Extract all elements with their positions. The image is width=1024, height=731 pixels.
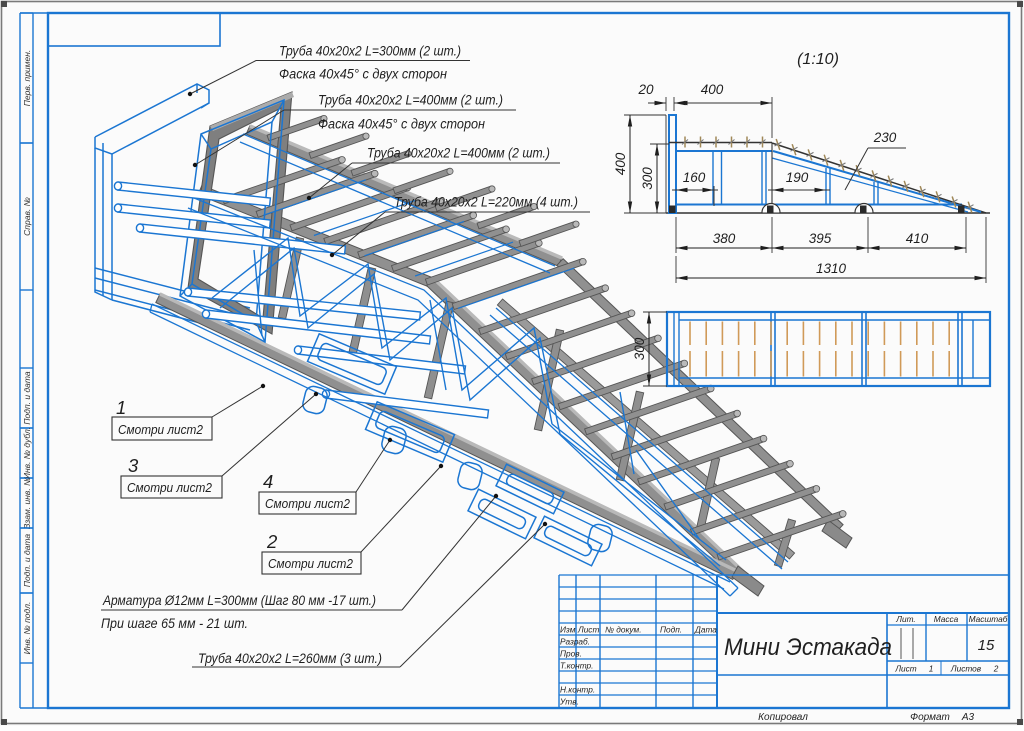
svg-text:Смотри лист2: Смотри лист2 bbox=[127, 481, 212, 495]
svg-text:Труба 40x20x2 L=260мм (3 шт.): Труба 40x20x2 L=260мм (3 шт.) bbox=[198, 651, 382, 666]
svg-text:2: 2 bbox=[993, 664, 999, 674]
svg-text:410: 410 bbox=[906, 231, 929, 246]
svg-text:Лист: Лист bbox=[577, 625, 599, 635]
svg-text:Лист: Лист bbox=[894, 664, 916, 674]
svg-text:Подп. и дата: Подп. и дата bbox=[22, 534, 32, 587]
svg-text:Смотри лист2: Смотри лист2 bbox=[268, 557, 353, 571]
svg-text:При шаге 65 мм - 21 шт.: При шаге 65 мм - 21 шт. bbox=[101, 616, 248, 631]
svg-text:1: 1 bbox=[116, 397, 126, 418]
svg-text:Справ. №: Справ. № bbox=[22, 197, 32, 236]
svg-text:Разраб.: Разраб. bbox=[560, 637, 590, 647]
svg-text:Подп.: Подп. bbox=[660, 625, 682, 635]
svg-text:Взам. инв. №: Взам. инв. № bbox=[22, 477, 32, 530]
svg-text:380: 380 bbox=[713, 231, 736, 246]
svg-text:Фаска 40x45° с двух сторон: Фаска 40x45° с двух сторон bbox=[279, 67, 448, 82]
svg-text:Труба 40x20x2 L=400мм (2 шт.): Труба 40x20x2 L=400мм (2 шт.) bbox=[318, 93, 503, 108]
svg-text:2: 2 bbox=[266, 531, 278, 552]
svg-text:Т.контр.: Т.контр. bbox=[560, 661, 593, 671]
svg-text:Труба 40x20x2 L=300мм (2 шт.): Труба 40x20x2 L=300мм (2 шт.) bbox=[279, 44, 461, 59]
svg-text:Масса: Масса bbox=[934, 614, 959, 624]
svg-text:Дата: Дата bbox=[694, 625, 717, 635]
svg-text:3: 3 bbox=[128, 455, 139, 476]
svg-text:190: 190 bbox=[786, 170, 809, 185]
svg-text:Изм: Изм bbox=[560, 625, 576, 635]
svg-text:Листов: Листов bbox=[950, 664, 982, 674]
svg-text:400: 400 bbox=[613, 152, 628, 175]
svg-text:Труба 40x20x2 L=400мм (2 шт.): Труба 40x20x2 L=400мм (2 шт.) bbox=[367, 146, 550, 161]
svg-text:Инв. № дубл.: Инв. № дубл. bbox=[22, 427, 32, 479]
svg-text:Мини Эстакада: Мини Эстакада bbox=[724, 634, 892, 661]
svg-text:Утв.: Утв. bbox=[559, 697, 579, 707]
svg-text:Фаска 40x45° с двух сторон: Фаска 40x45° с двух сторон bbox=[318, 117, 486, 132]
svg-text:400: 400 bbox=[701, 82, 724, 97]
svg-text:Лит.: Лит. bbox=[895, 614, 915, 624]
svg-text:4: 4 bbox=[263, 471, 273, 492]
svg-text:300: 300 bbox=[640, 167, 655, 190]
svg-text:№ докум.: № докум. bbox=[605, 625, 642, 635]
svg-text:1310: 1310 bbox=[816, 261, 847, 276]
svg-text:Смотри лист2: Смотри лист2 bbox=[265, 497, 350, 511]
svg-text:Труба 40x20x2 L=220мм (4 шт.): Труба 40x20x2 L=220мм (4 шт.) bbox=[394, 195, 578, 210]
svg-text:20: 20 bbox=[637, 82, 654, 97]
svg-text:Пров.: Пров. bbox=[560, 649, 582, 659]
svg-text:(1:10): (1:10) bbox=[797, 51, 839, 68]
svg-text:230: 230 bbox=[873, 130, 897, 145]
svg-text:Смотри лист2: Смотри лист2 bbox=[118, 423, 203, 437]
svg-text:Перв. примен.: Перв. примен. bbox=[22, 50, 32, 107]
svg-text:15: 15 bbox=[978, 637, 995, 654]
svg-text:Подп. и дата: Подп. и дата bbox=[22, 371, 32, 424]
svg-text:395: 395 bbox=[809, 231, 832, 246]
svg-text:Копировал: Копировал bbox=[758, 712, 808, 723]
svg-text:Н.контр.: Н.контр. bbox=[560, 685, 595, 695]
svg-text:Масштаб: Масштаб bbox=[969, 614, 1008, 624]
svg-text:300: 300 bbox=[632, 337, 647, 360]
svg-text:Инв. № подл.: Инв. № подл. bbox=[22, 602, 32, 655]
svg-text:Формат: Формат bbox=[910, 712, 950, 723]
svg-text:1: 1 bbox=[929, 664, 934, 674]
svg-text:160: 160 bbox=[683, 170, 706, 185]
svg-text:Арматура Ø12мм L=300мм (Шаг 8: Арматура Ø12мм L=300мм (Шаг 80 мм -17 шт… bbox=[102, 593, 376, 608]
svg-text:А3: А3 bbox=[961, 712, 975, 723]
